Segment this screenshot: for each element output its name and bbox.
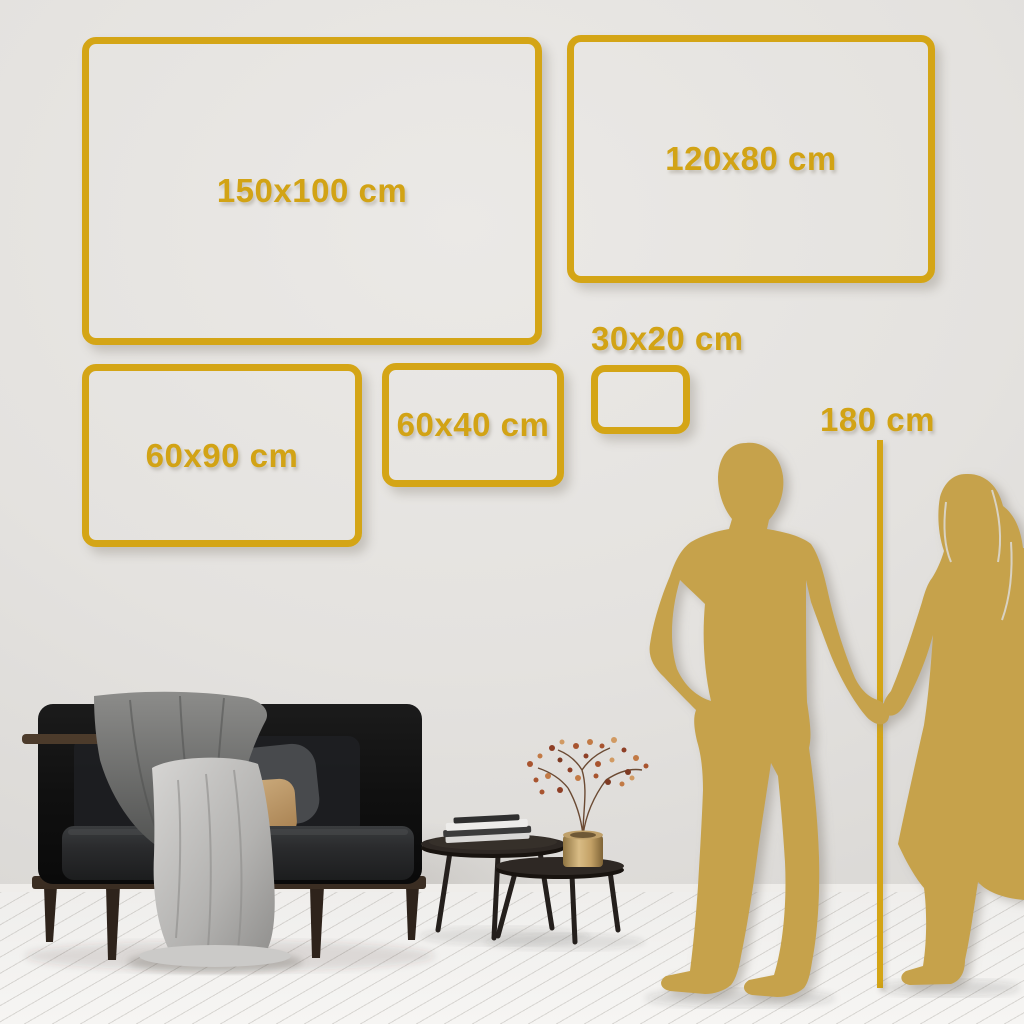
couple-silhouette [640, 430, 1024, 1024]
size-label-60x40: 60x40 cm [397, 406, 550, 444]
vase [563, 835, 603, 867]
plant-branches [538, 748, 642, 835]
size-frame-60x90: 60x90 cm [82, 364, 362, 547]
size-label-30x20: 30x20 cm [591, 320, 744, 358]
size-label-120x80: 120x80 cm [665, 140, 836, 178]
size-frame-120x80: 120x80 cm [567, 35, 935, 283]
man-silhouette [650, 443, 890, 997]
sofa-blanket-light [152, 758, 275, 961]
small-table-top [496, 857, 624, 875]
man-feet-shadow [645, 989, 835, 1007]
size-frame-150x100: 150x100 cm [82, 37, 542, 345]
table-shadow [485, 934, 645, 950]
book-stack [442, 814, 531, 844]
size-frame-60x40: 60x40 cm [382, 363, 564, 487]
woman-silhouette [884, 474, 1024, 985]
size-label-60x90: 60x90 cm [146, 437, 299, 475]
size-frame-30x20 [591, 365, 690, 434]
size-guide-scene: 150x100 cm 120x80 cm 60x90 cm 60x40 cm 3… [0, 0, 1024, 1024]
plant-berries [527, 737, 649, 795]
blanket-pool [139, 945, 291, 967]
sofa [10, 690, 450, 990]
size-label-150x100: 150x100 cm [217, 172, 407, 210]
vase-mouth [570, 832, 596, 838]
